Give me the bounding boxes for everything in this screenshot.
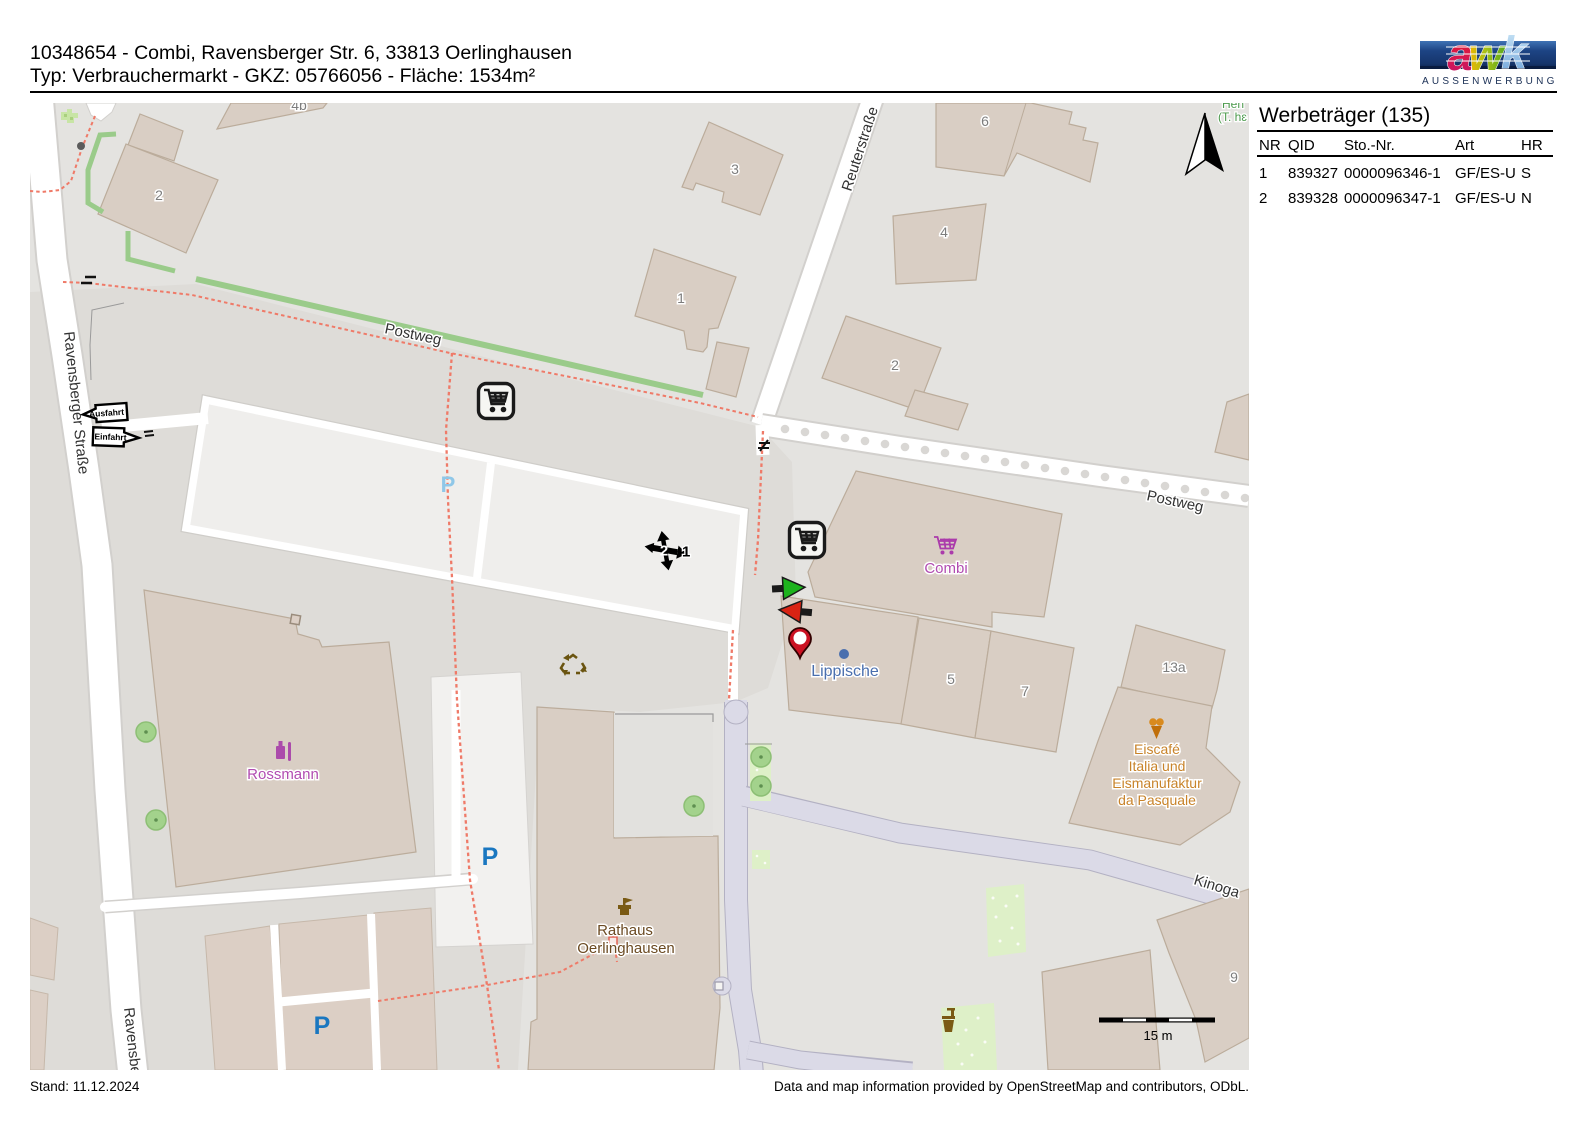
svg-text:2: 2 <box>660 543 668 560</box>
svg-text:da Pasquale: da Pasquale <box>1118 792 1196 808</box>
svg-text:3: 3 <box>731 161 739 177</box>
svg-text:Rossmann: Rossmann <box>247 766 319 783</box>
svg-text:Eismanufaktur: Eismanufaktur <box>1112 775 1202 791</box>
svg-text:13a: 13a <box>1162 659 1186 675</box>
svg-text:P: P <box>482 843 499 871</box>
svg-text:4b: 4b <box>291 103 307 113</box>
svg-text:2: 2 <box>155 187 163 203</box>
svg-text:Rathaus: Rathaus <box>597 922 653 939</box>
svg-text:Lippische: Lippische <box>811 663 879 680</box>
svg-text:k: k <box>1501 27 1528 78</box>
svg-text:Italia und: Italia und <box>1129 758 1186 774</box>
svg-text:5: 5 <box>947 671 955 687</box>
svg-text:15 m: 15 m <box>1144 1028 1173 1043</box>
svg-text:Combi: Combi <box>924 560 967 577</box>
svg-text:1: 1 <box>682 544 690 561</box>
svg-text:Eiscafé: Eiscafé <box>1134 741 1180 757</box>
svg-text:AUSSENWERBUNG: AUSSENWERBUNG <box>1422 76 1558 87</box>
svg-text:4: 4 <box>940 224 948 240</box>
svg-text:7: 7 <box>1021 683 1029 699</box>
svg-text:Einfahrt: Einfahrt <box>94 431 127 442</box>
svg-text:(T. hɛ: (T. hɛ <box>1218 110 1247 124</box>
svg-text:2: 2 <box>891 357 899 373</box>
svg-text:P: P <box>441 472 456 497</box>
svg-text:Oerlinghausen: Oerlinghausen <box>577 940 675 957</box>
svg-text:6: 6 <box>981 113 989 129</box>
svg-text:9: 9 <box>1230 969 1238 985</box>
svg-text:1: 1 <box>677 290 685 306</box>
svg-text:P: P <box>314 1012 331 1040</box>
